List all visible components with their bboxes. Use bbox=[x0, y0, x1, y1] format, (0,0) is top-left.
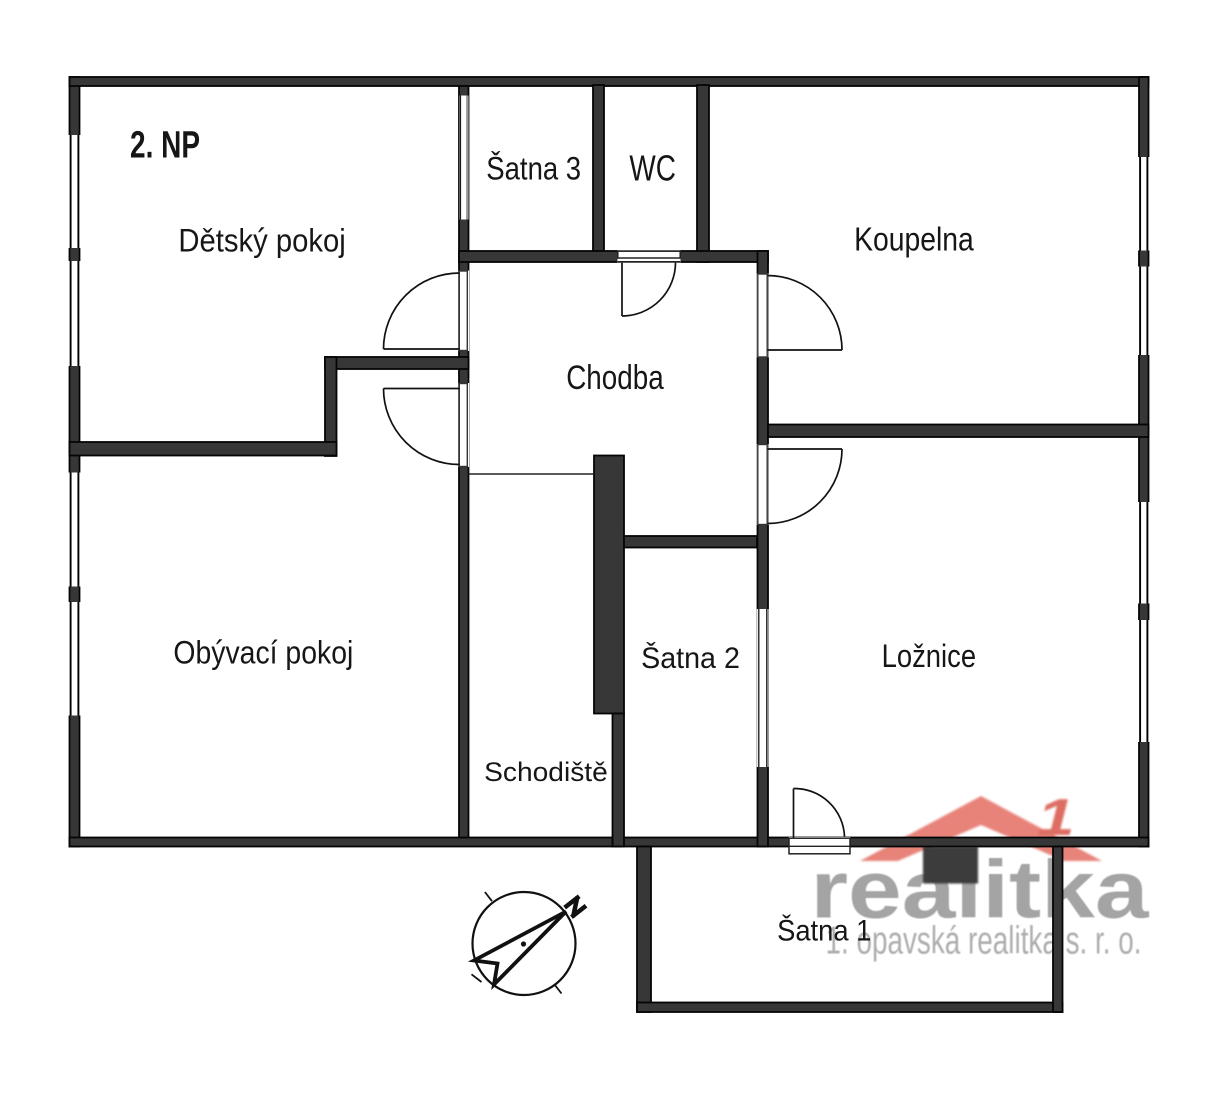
svg-text:Ložnice: Ložnice bbox=[882, 638, 977, 674]
svg-text:WC: WC bbox=[629, 148, 676, 189]
svg-text:Koupelna: Koupelna bbox=[854, 221, 974, 258]
svg-text:Šatna 3: Šatna 3 bbox=[486, 151, 581, 187]
svg-text:Schodiště: Schodiště bbox=[484, 757, 608, 787]
svg-text:Chodba: Chodba bbox=[566, 359, 664, 397]
svg-text:Šatna 1: Šatna 1 bbox=[777, 913, 871, 947]
svg-text:Šatna 2: Šatna 2 bbox=[641, 641, 740, 675]
svg-text:Dětský pokoj: Dětský pokoj bbox=[178, 223, 345, 259]
svg-text:2. NP: 2. NP bbox=[130, 125, 200, 167]
svg-text:1. opavská realitka s. r. o.: 1. opavská realitka s. r. o. bbox=[826, 920, 1142, 963]
svg-text:Obývací pokoj: Obývací pokoj bbox=[173, 635, 353, 671]
